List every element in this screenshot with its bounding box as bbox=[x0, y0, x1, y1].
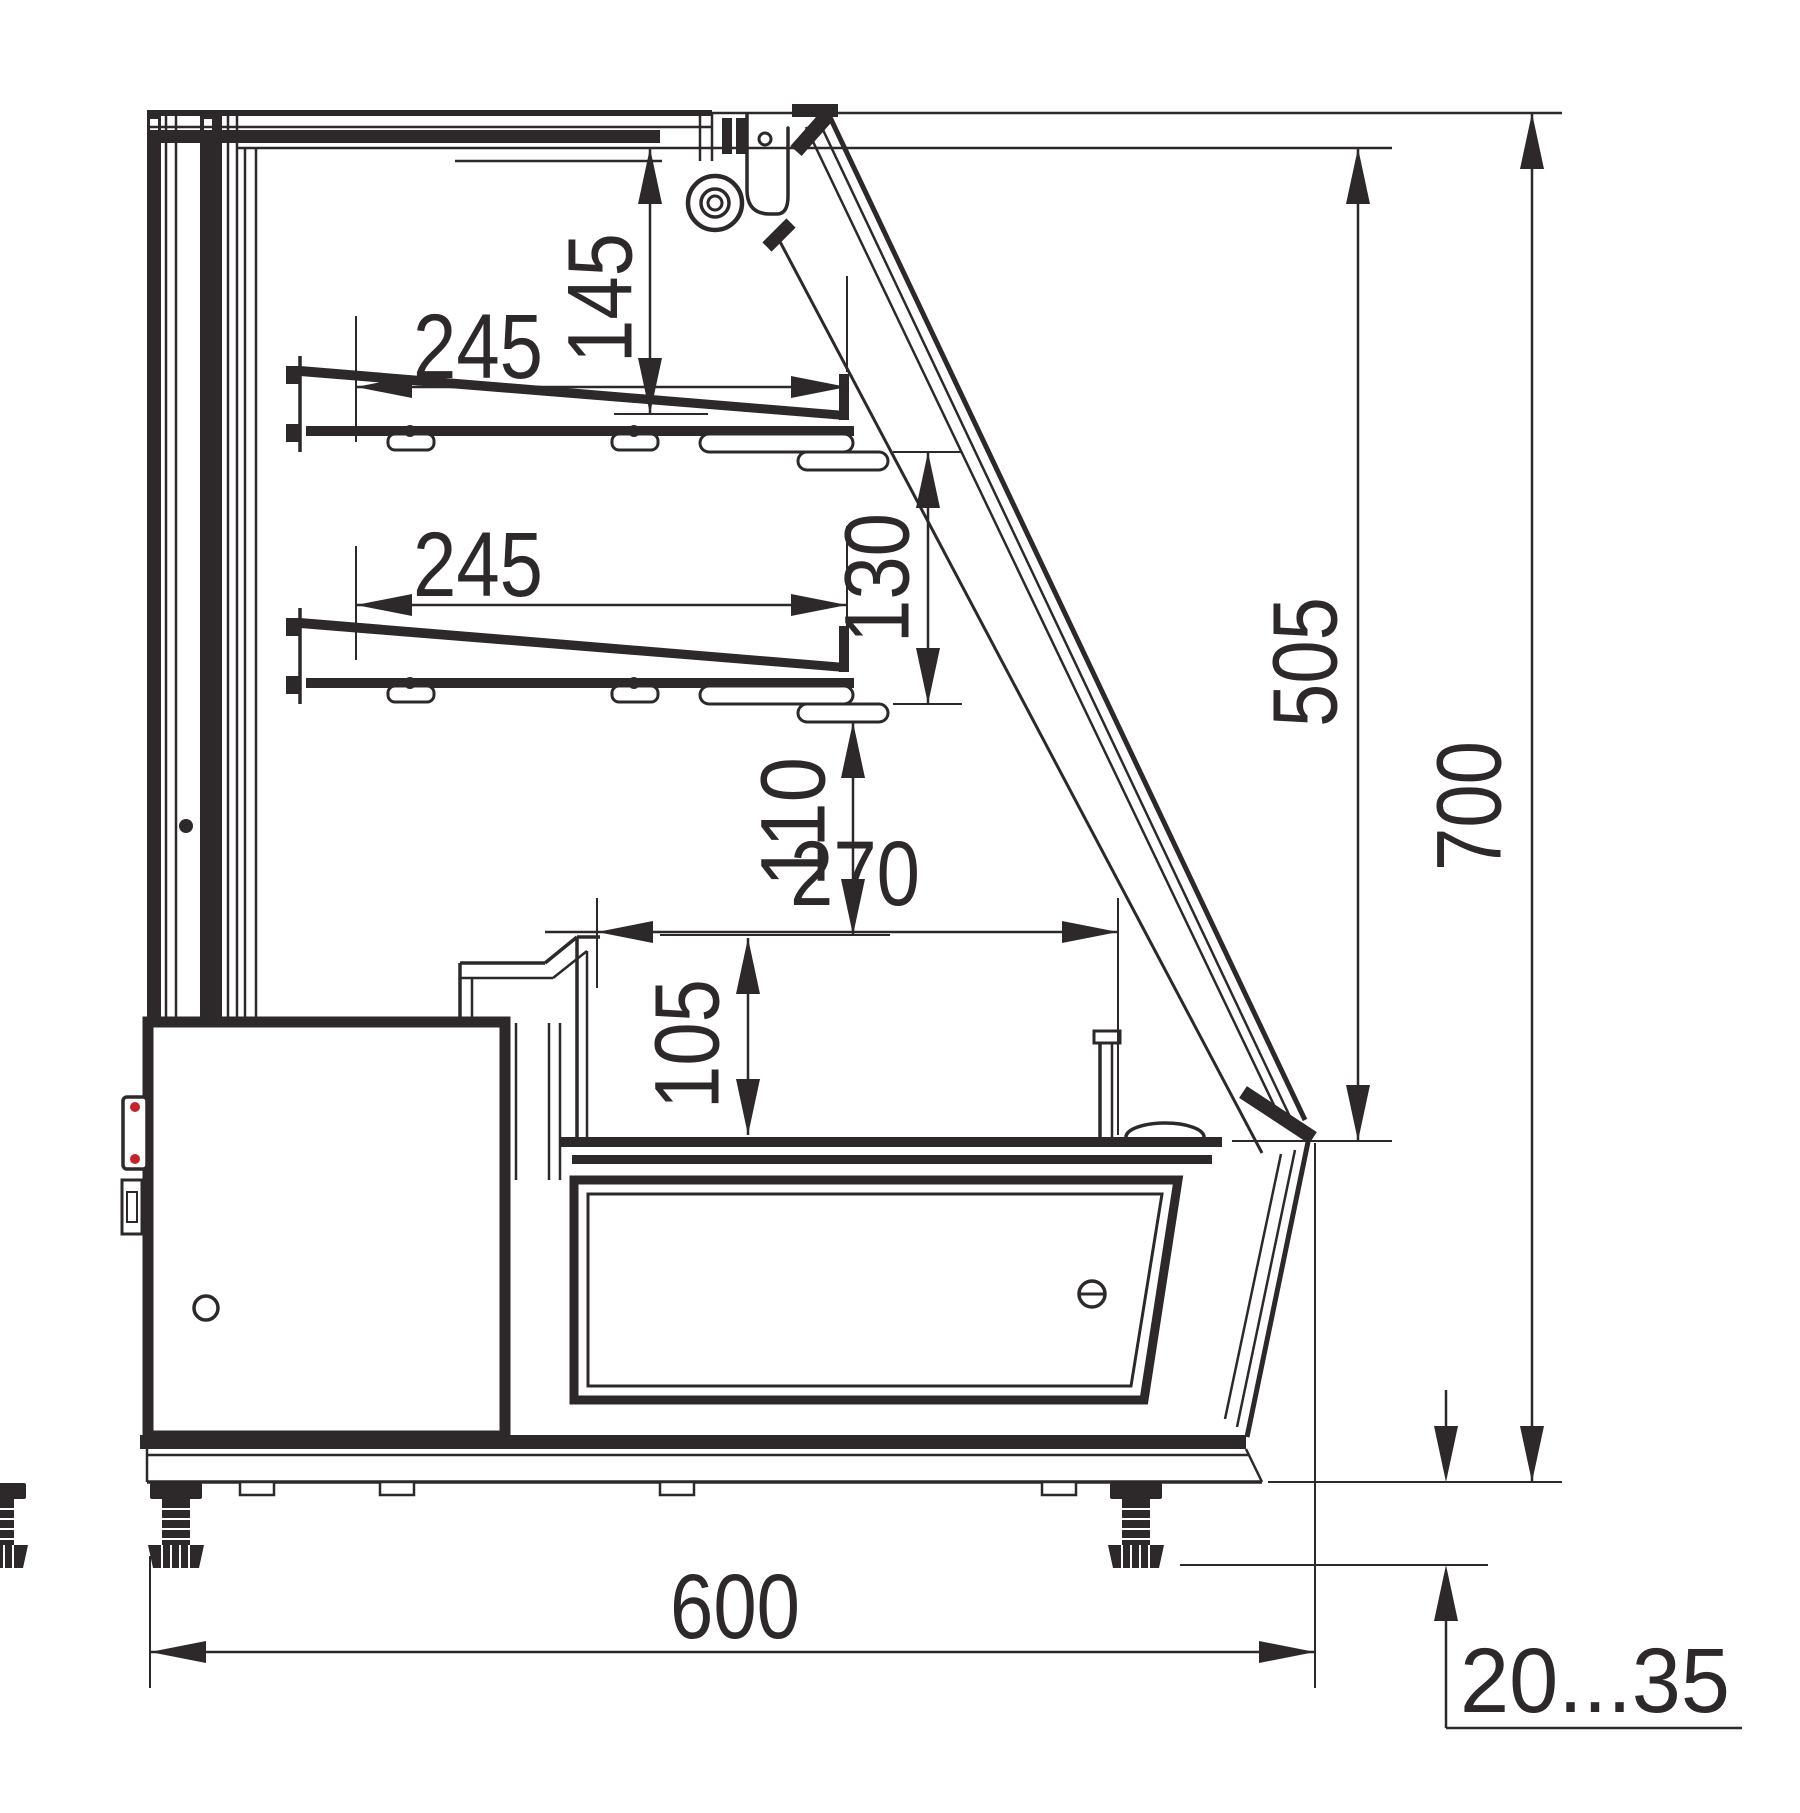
shelf-price-strip bbox=[798, 452, 888, 470]
dim-label-leg-adjust-range: 20...35 bbox=[1460, 1630, 1730, 1732]
arrowhead-left bbox=[597, 921, 653, 943]
canopy-end-profile bbox=[700, 113, 712, 161]
shelf-top-plate bbox=[300, 366, 845, 420]
front-panel-outer bbox=[1247, 1142, 1308, 1437]
foot-left bbox=[148, 1483, 204, 1568]
base-mount-tab bbox=[1042, 1482, 1076, 1495]
dim-overall-height: 700 bbox=[1268, 113, 1562, 1482]
arrowhead-up bbox=[1346, 148, 1370, 204]
shelf-end-cap bbox=[700, 434, 853, 452]
arrowhead-left bbox=[356, 594, 412, 616]
canopy-lamp-channel bbox=[147, 130, 660, 143]
base-mount-tab bbox=[380, 1482, 414, 1495]
roller-wheel-mid bbox=[701, 189, 729, 217]
dim-label-shelf-lower-depth: 245 bbox=[413, 514, 543, 616]
arrowhead-down bbox=[736, 1079, 760, 1135]
arrowhead-right bbox=[791, 376, 847, 398]
well-front-wall-cap bbox=[1094, 1031, 1120, 1043]
arrowhead-down bbox=[1346, 1085, 1370, 1141]
switch-indicator-red bbox=[130, 1154, 140, 1164]
dim-label-well-depth: 270 bbox=[790, 823, 920, 925]
dim-label-shelf-spacing: 130 bbox=[826, 513, 928, 643]
arrowhead-up bbox=[638, 148, 662, 204]
front-panel-line bbox=[1225, 1154, 1281, 1419]
shelf-screw bbox=[404, 425, 416, 437]
dim-canopy-to-shelf: 145 bbox=[549, 148, 708, 414]
roller-bracket bbox=[747, 115, 788, 214]
front-panel-line bbox=[1237, 1150, 1295, 1427]
dim-well-height: 105 bbox=[636, 938, 760, 1135]
arrowhead-up bbox=[736, 938, 760, 994]
roller-bracket-screw bbox=[759, 133, 771, 145]
adjustable-foot bbox=[0, 1483, 28, 1568]
arrowhead-left bbox=[150, 1641, 206, 1663]
deck-lower-band bbox=[572, 1155, 1212, 1164]
dim-well-depth: 270 bbox=[545, 823, 1118, 1135]
drawing-canvas: 245 145 245 130 110 270 bbox=[0, 0, 1800, 1813]
machine-compartment-box bbox=[148, 1022, 505, 1436]
dim-opening-height: 505 bbox=[1232, 148, 1392, 1141]
dim-label-shelf-upper-depth: 245 bbox=[413, 296, 543, 398]
glass-top-clamp bbox=[796, 116, 827, 151]
canopy-lamp-bar bbox=[722, 118, 732, 154]
base bbox=[140, 1435, 1262, 1495]
shelf-screw bbox=[628, 425, 640, 437]
shelf-hook-tab bbox=[286, 424, 300, 442]
canopy-lamp-bar bbox=[736, 118, 746, 154]
display-well bbox=[460, 937, 1222, 1164]
foot-plate bbox=[0, 1483, 26, 1499]
arrowhead-right bbox=[1062, 921, 1118, 943]
back-wall-inner-profile bbox=[200, 113, 222, 1022]
roller-wheel-outer bbox=[688, 176, 742, 230]
machine-compartment bbox=[122, 1022, 505, 1436]
foot-right bbox=[1108, 1483, 1164, 1568]
back-wall-outer-profile bbox=[147, 113, 161, 1022]
base-bottom-bar bbox=[140, 1435, 1246, 1449]
arrowhead-up bbox=[841, 722, 865, 778]
roller-wheel-axle bbox=[708, 196, 722, 210]
dim-label-opening-height: 505 bbox=[1254, 597, 1356, 727]
front-panel bbox=[1225, 1142, 1308, 1437]
base-mount-tab bbox=[660, 1482, 694, 1495]
dim-label-overall-height: 700 bbox=[1418, 741, 1520, 871]
dim-label-well-height: 105 bbox=[636, 979, 738, 1109]
deck-glass-stop bbox=[1126, 1123, 1204, 1137]
back-wall-rivet bbox=[179, 819, 193, 833]
base-plinth bbox=[147, 1449, 1262, 1482]
base-mount-tab bbox=[240, 1482, 274, 1495]
arrowhead-down bbox=[1520, 1426, 1544, 1482]
arrowhead-right bbox=[1259, 1641, 1315, 1663]
lower-compartment bbox=[505, 1023, 1178, 1400]
compartment-liner-outer bbox=[574, 1180, 1178, 1400]
canopy bbox=[147, 113, 1562, 161]
back-wall bbox=[147, 113, 256, 1022]
shelf-hook-tab bbox=[286, 366, 300, 384]
arrowhead-up bbox=[1520, 113, 1544, 169]
shelf-lower bbox=[286, 608, 888, 722]
compartment-partitions bbox=[505, 1023, 560, 1180]
arrowhead-up bbox=[916, 452, 940, 508]
shelf-template bbox=[286, 356, 888, 470]
dim-label-canopy-to-shelf: 145 bbox=[549, 233, 651, 363]
arrowhead-down bbox=[1434, 1426, 1458, 1482]
cable-gland bbox=[122, 1180, 142, 1234]
deck-surface bbox=[560, 1137, 1222, 1147]
arrowhead-down bbox=[916, 648, 940, 704]
shelf-front-lip bbox=[839, 374, 849, 420]
arrowhead-up bbox=[1434, 1565, 1458, 1621]
switch-indicator-red bbox=[130, 1102, 140, 1112]
glass-inner-pane-cap bbox=[767, 223, 791, 247]
dim-leg-adjust-range: 20...35 bbox=[1180, 1390, 1742, 1732]
dim-label-overall-depth: 600 bbox=[670, 1556, 800, 1658]
